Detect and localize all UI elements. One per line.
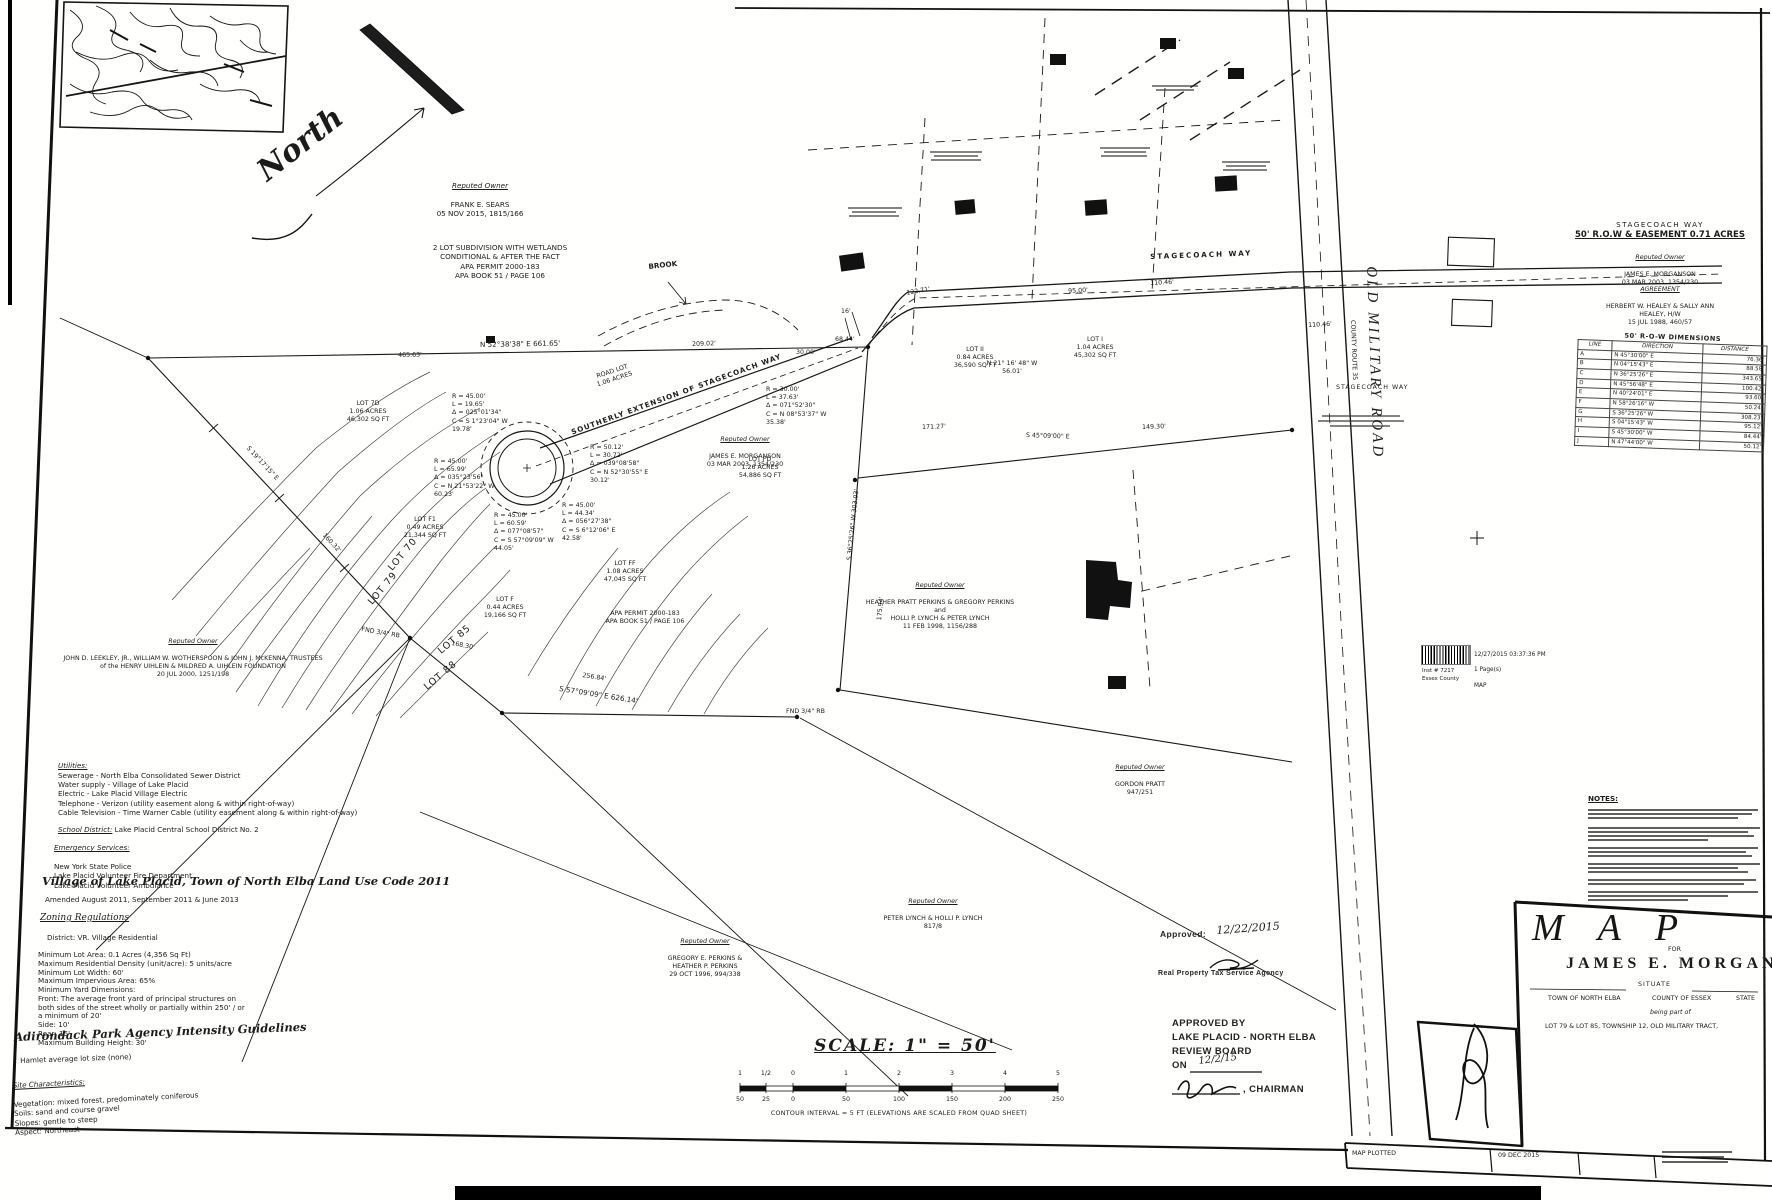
owner-note-body: PETER LYNCH & HOLLI P. LYNCH 817/8 xyxy=(884,915,983,931)
tax-approved-label: Approved: xyxy=(1160,929,1206,940)
old-military-road-lines xyxy=(1288,0,1392,1136)
reputed-owner-heading: Reputed Owner xyxy=(1622,254,1698,262)
title-town: TOWN OF NORTH ELBA xyxy=(1548,995,1621,1003)
cell-distance: 50.12' xyxy=(1699,440,1763,452)
curve-data-6: R = 30.00' L = 37.63' Δ = 071°52'30" C =… xyxy=(766,386,826,427)
agreement-body: HERBERT W. HEALEY & SALLY ANN HEALEY, H/… xyxy=(1604,303,1716,328)
scan-artifact-bar xyxy=(455,1186,1541,1200)
dim-95: 95.00' xyxy=(1068,287,1088,296)
reputed-owner-heading: Reputed Owner xyxy=(28,638,358,646)
reputed-owner-heading: Reputed Owner xyxy=(437,181,524,190)
cell-line: H xyxy=(1575,417,1609,428)
dim-30: 30.00' xyxy=(796,349,816,357)
recorder-county: Essex County xyxy=(1422,676,1459,683)
owner-note-body: JOHN D. LEEKLEY, JR., WILLIAM W. WOTHERS… xyxy=(28,655,358,680)
scale-tick: 100 xyxy=(893,1096,905,1104)
contour-interval-note: CONTOUR INTERVAL = 5 FT (ELEVATIONS ARE … xyxy=(771,1110,1027,1118)
recorder-doc-type: MAP xyxy=(1474,683,1546,691)
scale-tick: 50 xyxy=(736,1096,744,1104)
monument-note-2: FND 3/4" RB xyxy=(786,708,825,716)
recorder-stamp: 12/27/2015 03:37:36 PM 1 Page(s) MAP xyxy=(1474,644,1546,699)
recorder-barcode xyxy=(1422,646,1470,664)
emergency-services-note: Emergency Services: New York State Polic… xyxy=(54,834,192,900)
notes-heading: NOTES: xyxy=(1588,794,1618,803)
tax-agency-signature xyxy=(1210,960,1258,970)
scale-tick: 250 xyxy=(1052,1096,1064,1104)
reputed-owner-heading: Reputed Owner xyxy=(668,938,743,946)
scale-tick: 200 xyxy=(999,1096,1011,1104)
land-use-code-title: Village of Lake Placid, Town of North El… xyxy=(42,874,450,888)
scale-tick: 1/2 xyxy=(761,1070,771,1078)
scale-tick: 2 xyxy=(897,1070,901,1078)
title-for-label: FOR xyxy=(1668,946,1681,954)
board-approved-line2: LAKE PLACID - NORTH ELBA xyxy=(1172,1032,1316,1044)
zoning-regulations-heading: Zoning Regulations xyxy=(40,913,129,924)
scale-tick: 3 xyxy=(950,1070,954,1078)
lot-f-label: LOT F 0.44 ACRES 19,166 SQ FT xyxy=(484,596,526,621)
scale-tick: 50 xyxy=(842,1096,850,1104)
school-district-body: Lake Placid Central School District No. … xyxy=(112,825,258,834)
district-note: District: VR. Village Residential xyxy=(47,933,158,942)
curve-data-1: R = 45.00' L = 19.65' Δ = 025°01'34" C =… xyxy=(452,393,508,434)
cell-line: J xyxy=(1574,436,1608,447)
site-body: Vegetation: mixed forest, predominately … xyxy=(13,1090,200,1137)
lot-ii-label: LOT II 0.84 ACRES 36,590 SQ FT xyxy=(954,346,996,371)
scale-tick: 150 xyxy=(946,1096,958,1104)
brook-lines xyxy=(598,282,798,346)
school-district-note: School District: Lake Placid Central Sch… xyxy=(58,816,259,835)
title-situate-label: SITUATE xyxy=(1638,981,1671,989)
margin-notes-text xyxy=(1588,810,1760,1162)
owner-note-uihlein: Reputed Owner JOHN D. LEEKLEY, JR., WILL… xyxy=(28,630,358,687)
dim-110a: 110.46' xyxy=(1150,279,1174,288)
agreement-note-healey: AGREEMENT HERBERT W. HEALEY & SALLY ANN … xyxy=(1604,278,1716,335)
curve-data-3: R = 45.00' L = 60.59' Δ = 077°08'57" C =… xyxy=(494,512,554,553)
cell-line: E xyxy=(1576,388,1610,399)
title-client-name: JAMES E. MORGANSON xyxy=(1566,954,1772,974)
owner-note-body: GREGORY E. PERKINS & HEATHER P. PERKINS … xyxy=(668,955,743,980)
reputed-owner-heading: Reputed Owner xyxy=(707,436,783,444)
amended-note: Amended August 2011, September 2011 & Ju… xyxy=(45,895,239,904)
tax-agency-label: Real Property Tax Service Agency xyxy=(1158,970,1284,979)
dim-209: 209.02' xyxy=(692,340,716,349)
recorder-inst: Inst # 7217 xyxy=(1422,668,1454,675)
owner-note-body: GORDON PRATT 947/251 xyxy=(1115,781,1165,797)
apa-permit-note: APA PERMIT 2000-183 APA BOOK 51 / PAGE 1… xyxy=(606,610,685,626)
owner-note-lynch: Reputed Owner PETER LYNCH & HOLLI P. LYN… xyxy=(884,890,983,939)
utilities-heading: Utilities: xyxy=(58,761,87,770)
recorder-pages: 1 Page(s) xyxy=(1474,667,1546,675)
signatures xyxy=(1172,960,1488,1128)
owner-note-pratt: Reputed Owner GORDON PRATT 947/251 xyxy=(1115,756,1165,805)
cell-line: G xyxy=(1575,407,1609,418)
lot-fd-label: LOT FD 1.26 ACRES 54,886 SQ FT xyxy=(739,456,781,481)
scale-tick: 1 xyxy=(844,1070,848,1078)
lot-i-label: LOT I 1.04 ACRES 45,302 SQ FT xyxy=(1074,336,1116,361)
title-county: COUNTY OF ESSEX xyxy=(1652,995,1711,1003)
site-heading: Site Characteristics: xyxy=(12,1072,197,1091)
cul-de-sac xyxy=(481,422,573,514)
reputed-owner-heading: Reputed Owner xyxy=(866,582,1014,590)
owner-note-body: FRANK E. SEARS 05 NOV 2015, 1815/166 xyxy=(437,200,524,219)
survey-plat-sheet: North Reputed Owner FRANK E. SEARS 05 NO… xyxy=(0,0,1772,1200)
dim-171: 171.27' xyxy=(922,423,946,432)
scale-tick: 4 xyxy=(1003,1070,1007,1078)
stagecoach-way-east-label: STAGECOACH WAY xyxy=(1336,384,1409,392)
dim-465: 465.63' xyxy=(398,352,422,361)
board-approved-line1: APPROVED BY xyxy=(1172,1018,1246,1030)
row-heading-road: STAGECOACH WAY xyxy=(1616,220,1704,229)
title-lots-line: LOT 79 & LOT 85, TOWNSHIP 12, OLD MILITA… xyxy=(1545,1023,1718,1031)
cell-line: A xyxy=(1577,349,1611,360)
row-easement-heading: 50' R.O.W & EASEMENT 0.71 ACRES xyxy=(1575,230,1745,241)
dim-110b: 110.46' xyxy=(1308,321,1332,330)
recorder-datetime: 12/27/2015 03:37:36 PM xyxy=(1474,652,1546,660)
subdivision-note: 2 LOT SUBDIVISION WITH WETLANDS CONDITIO… xyxy=(433,243,567,280)
scale-tick: 0 xyxy=(791,1070,795,1078)
row-dimensions-table: 50' R-O-W DIMENSIONS LINE DIRECTION DIST… xyxy=(1574,330,1768,453)
surveyor-signature xyxy=(1456,1024,1488,1128)
dim-68: 68.44' xyxy=(835,336,855,344)
dim-149: 149.30' xyxy=(1142,423,1166,432)
owner-note-body: HEATHER PRATT PERKINS & GREGORY PERKINS … xyxy=(866,599,1014,632)
cell-line: F xyxy=(1576,397,1610,408)
scale-tick: 25 xyxy=(762,1096,770,1104)
scale-tick: 1 xyxy=(738,1070,742,1078)
title-map-word: MAP xyxy=(1532,905,1712,953)
reputed-owner-heading: Reputed Owner xyxy=(1115,764,1165,772)
agreement-heading: AGREEMENT xyxy=(1604,286,1716,294)
emergency-heading: Emergency Services: xyxy=(54,843,192,852)
curve-data-2: R = 45.00' L = 65.99' Δ = 035°23'56" C =… xyxy=(434,458,494,499)
scale-tick: 5 xyxy=(1056,1070,1060,1078)
title-state: STATE xyxy=(1736,995,1755,1003)
title-being-part-of: being part of xyxy=(1650,1009,1691,1017)
chairman-signature xyxy=(1178,1081,1236,1098)
lot-ff-label: LOT FF 1.08 ACRES 47,045 SQ FT xyxy=(604,560,646,585)
map-plotted-label: MAP PLOTTED xyxy=(1352,1150,1396,1158)
owner-note-perkins: Reputed Owner GREGORY E. PERKINS & HEATH… xyxy=(668,930,743,987)
reputed-owner-heading: Reputed Owner xyxy=(884,898,983,906)
utilities-body: Sewerage - North Elba Consolidated Sewer… xyxy=(58,771,357,818)
bearing-s45: S 45°09'00" E xyxy=(1026,432,1070,442)
chairman-label: , CHAIRMAN xyxy=(1243,1084,1304,1096)
lot-7d-label: LOT 7D 1.06 ACRES 46,302 SQ FT xyxy=(347,400,389,425)
site-characteristics-note: Site Characteristics: Vegetation: mixed … xyxy=(12,1062,201,1146)
bearing-top-boundary: N 52°38'38" E 661.65' xyxy=(480,339,560,350)
owner-note-sears: Reputed Owner FRANK E. SEARS 05 NOV 2015… xyxy=(437,172,524,228)
map-plotted-date: 09 DEC 2015 xyxy=(1498,1152,1539,1160)
curve-data-5: R = 50.12' L = 30.72' Δ = 039°08'58" C =… xyxy=(590,444,648,485)
quad-map-inset xyxy=(60,2,288,132)
scale-tick: 0 xyxy=(791,1096,795,1104)
scale-bar xyxy=(740,1083,1058,1093)
scale-title: SCALE: 1" = 50' xyxy=(814,1036,996,1057)
cell-line: C xyxy=(1577,368,1611,379)
owner-note-perkins-lynch: Reputed Owner HEATHER PRATT PERKINS & GR… xyxy=(866,574,1014,639)
curve-data-4: R = 45.00' L = 44.34' Δ = 056°27'38" C =… xyxy=(562,502,615,543)
school-district-heading: School District: xyxy=(58,825,112,834)
cell-line: D xyxy=(1576,378,1610,389)
cell-line: B xyxy=(1577,359,1611,370)
board-on-label: ON xyxy=(1172,1060,1187,1072)
misc-marks xyxy=(1470,531,1484,545)
dim-16: 16' xyxy=(841,308,851,316)
